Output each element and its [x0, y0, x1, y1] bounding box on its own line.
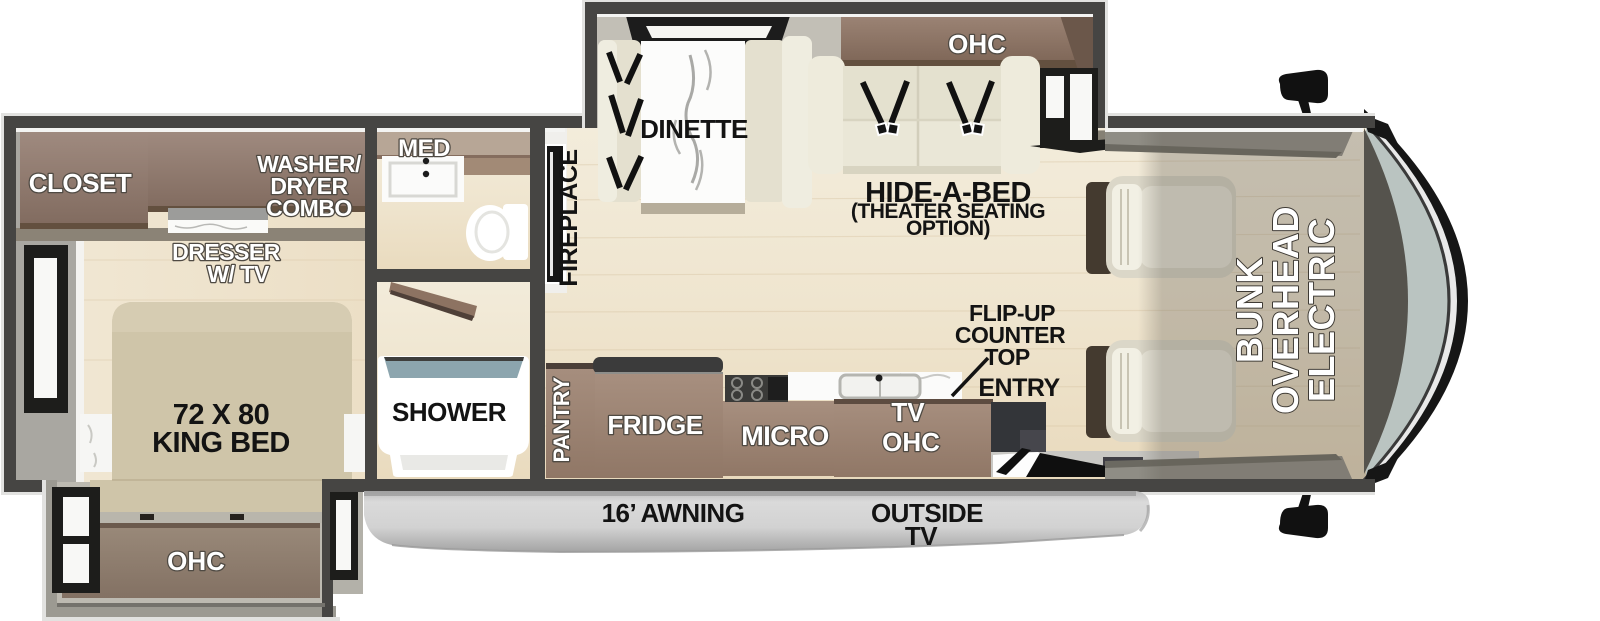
- svg-text:DINETTE: DINETTE: [640, 114, 748, 144]
- svg-text:OHC: OHC: [167, 546, 225, 576]
- svg-text:MICRO: MICRO: [741, 421, 829, 451]
- svg-text:TV: TV: [905, 521, 938, 551]
- svg-text:OHC: OHC: [882, 427, 940, 457]
- svg-text:KING BED: KING BED: [152, 427, 290, 459]
- svg-text:OVERHEAD: OVERHEAD: [1265, 206, 1306, 414]
- svg-text:OHC: OHC: [948, 29, 1006, 59]
- svg-text:PANTRY: PANTRY: [549, 377, 574, 463]
- svg-text:16’ AWNING: 16’ AWNING: [602, 498, 745, 528]
- svg-text:ENTRY: ENTRY: [978, 374, 1060, 402]
- svg-text:FIREPLACE: FIREPLACE: [555, 149, 583, 286]
- svg-text:CLOSET: CLOSET: [29, 168, 132, 198]
- svg-text:COMBO: COMBO: [266, 195, 352, 221]
- svg-text:SHOWER: SHOWER: [392, 397, 507, 427]
- svg-text:FRIDGE: FRIDGE: [607, 410, 702, 440]
- svg-text:BUNK: BUNK: [1229, 257, 1270, 363]
- svg-text:OPTION): OPTION): [906, 217, 990, 240]
- svg-text:W/ TV: W/ TV: [207, 261, 270, 287]
- svg-text:TV: TV: [891, 397, 925, 427]
- svg-text:ELECTRIC: ELECTRIC: [1301, 218, 1342, 402]
- svg-text:MED: MED: [398, 135, 450, 162]
- svg-text:TOP: TOP: [984, 344, 1030, 370]
